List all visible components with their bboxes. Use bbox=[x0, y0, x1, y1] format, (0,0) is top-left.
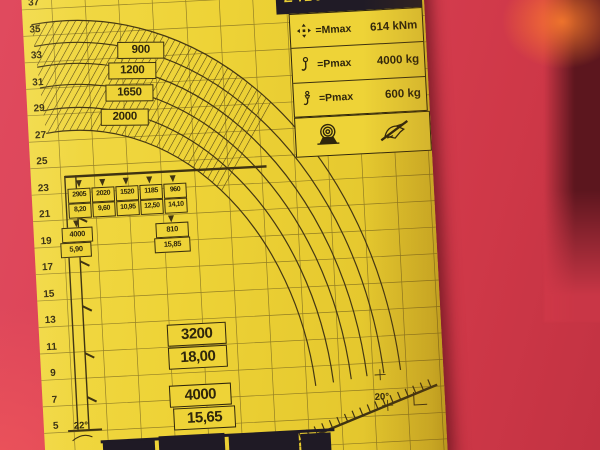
hook-icon bbox=[297, 56, 315, 75]
load-chart-sticker: 37 35 33 31 29 27 25 23 21 19 17 15 13 1… bbox=[20, 0, 448, 450]
moment-icon bbox=[295, 21, 313, 40]
rating-distance-box: 18,00 bbox=[168, 345, 228, 370]
tip-distance-box: 15,85 bbox=[154, 236, 191, 253]
height-scale-value: 21 bbox=[32, 207, 57, 221]
capacity-band-label: 1200 bbox=[108, 62, 156, 79]
height-scale-value: 9 bbox=[41, 366, 66, 380]
spec-row-pmax-winch-hook: =Pmax 600 kg bbox=[293, 77, 427, 117]
winch-icon bbox=[313, 121, 342, 151]
height-scale-value: 19 bbox=[34, 234, 59, 248]
spec-value: 600 kg bbox=[385, 88, 421, 102]
height-scale-value: 13 bbox=[38, 313, 63, 327]
height-scale-value: 31 bbox=[25, 75, 50, 89]
height-scale-value: 29 bbox=[27, 102, 52, 116]
outreach-load: 2905 bbox=[67, 188, 91, 204]
orange-glow bbox=[502, 0, 600, 69]
outreach-distance: 10,95 bbox=[116, 200, 140, 216]
boom-angle-label: 20° bbox=[374, 391, 389, 403]
outreach-load: 960 bbox=[163, 183, 187, 199]
outreach-distance: 12,50 bbox=[140, 199, 164, 215]
outreach-load: 1520 bbox=[115, 185, 139, 201]
rating-load-box: 4000 bbox=[169, 383, 232, 408]
no-grab-icon bbox=[377, 117, 412, 148]
spec-value: 614 kNm bbox=[370, 19, 418, 33]
capacity-band-label: 2000 bbox=[101, 109, 149, 126]
rating-distance-box: 15,65 bbox=[173, 405, 236, 430]
height-scale-value: 25 bbox=[30, 154, 55, 168]
rating-load-box: 3200 bbox=[167, 322, 227, 347]
height-scale-value: 7 bbox=[42, 393, 67, 407]
height-scale-value: 23 bbox=[31, 181, 56, 195]
height-scale-value: 15 bbox=[37, 287, 62, 301]
height-scale-value: 5 bbox=[43, 419, 68, 433]
outreach-distance: 14,10 bbox=[164, 198, 188, 214]
height-scale-value: 27 bbox=[28, 128, 53, 142]
capacity-band-label: 900 bbox=[117, 42, 164, 59]
column-load-box: 4000 bbox=[61, 227, 93, 244]
spec-label: =Pmax bbox=[319, 91, 354, 105]
height-scale-value: 17 bbox=[35, 260, 60, 274]
outreach-distance: 8,20 bbox=[68, 203, 92, 219]
photo-crane-load-chart: 37 35 33 31 29 27 25 23 21 19 17 15 13 1… bbox=[0, 0, 600, 450]
spec-value: 4000 kg bbox=[377, 53, 420, 67]
base-angle-arc bbox=[72, 435, 92, 441]
spec-label: =Pmax bbox=[317, 57, 352, 71]
outreach-load: 1185 bbox=[139, 184, 163, 200]
height-scale-value: 33 bbox=[24, 49, 49, 63]
height-scale-value: 37 bbox=[21, 0, 46, 10]
option-icons-box bbox=[294, 111, 432, 158]
outreach-distance: 9,60 bbox=[92, 201, 116, 217]
base-angle-label: 22° bbox=[74, 420, 89, 432]
capacity-band-label: 1650 bbox=[105, 84, 153, 101]
hook-eye-icon bbox=[299, 90, 317, 109]
outreach-load: 2020 bbox=[91, 186, 115, 202]
height-scale-value: 35 bbox=[23, 22, 48, 36]
column-distance-box: 5,90 bbox=[60, 242, 92, 259]
spec-table: =Mmax 614 kNm =Pmax 4000 kg =Pmax 600 kg bbox=[289, 7, 428, 118]
height-scale-value: 11 bbox=[39, 340, 64, 354]
cross-marks bbox=[374, 369, 393, 412]
spec-label: =Mmax bbox=[315, 22, 351, 36]
